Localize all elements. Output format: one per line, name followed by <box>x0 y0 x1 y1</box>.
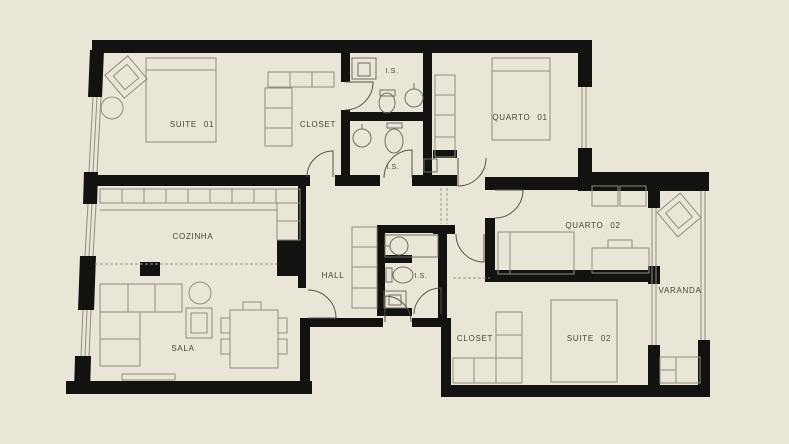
door-is-top-icon <box>345 82 373 110</box>
toilet-is-mid-icon <box>385 123 403 153</box>
room-label-suite-02: SUITE 02 <box>567 334 611 343</box>
dining-table-sala <box>221 302 287 368</box>
room-label-quarto-01: QUARTO 01 <box>492 113 547 122</box>
laundry-tub-icon <box>352 58 376 79</box>
toilet-is-hall-icon <box>386 267 413 283</box>
wardrobe-quarto-01 <box>435 75 455 157</box>
room-label-is-hall: I.S. <box>414 273 427 280</box>
hall-closet-shelves <box>352 227 377 308</box>
closet-top-shelves <box>265 72 334 146</box>
room-label-closet-top: CLOSET <box>300 120 336 129</box>
room-label-closet-bottom: CLOSET <box>457 334 493 343</box>
room-label-suite-01: SUITE 01 <box>170 120 214 129</box>
window-quarto01-icon <box>582 87 586 148</box>
armchair-suite-01-icon <box>105 56 147 98</box>
door-suites-wing-icon <box>456 234 484 262</box>
toilet-is-top-icon <box>379 90 395 113</box>
balcony-chair-icon <box>657 193 701 237</box>
room-label-is-top: I.S. <box>385 68 398 75</box>
room-label-quarto-02: QUARTO 02 <box>565 221 620 230</box>
balcony-cabinet-icon <box>660 357 700 383</box>
bed-suite-01 <box>146 58 216 142</box>
room-label-cozinha: COZINHA <box>173 232 214 241</box>
window-left-bottom-icon <box>81 310 91 356</box>
sink-is-mid-icon <box>353 124 371 147</box>
floor-plan-stage: SUITE 01CLOSETI.S.I.S.QUARTO 01COZINHAQU… <box>0 0 789 444</box>
varanda-railing-icon <box>701 191 705 340</box>
armchair-sala-icon <box>186 308 212 338</box>
room-label-is-mid: I.S. <box>386 164 399 171</box>
door-closet-top-icon <box>307 151 333 177</box>
shower-is-hall-icon <box>384 291 406 308</box>
room-label-sala: SALA <box>171 344 194 353</box>
room-label-varanda: VARANDA <box>659 286 702 295</box>
closet-bottom-shelves <box>453 312 522 383</box>
floor-plan-svg: SUITE 01CLOSETI.S.I.S.QUARTO 01COZINHAQU… <box>0 0 789 444</box>
window-left-top-icon <box>89 97 101 172</box>
door-is-hall-icon <box>414 288 441 314</box>
door-quarto02-icon <box>495 190 523 218</box>
sideboard-sala-icon <box>122 374 175 380</box>
side-table-sala-icon <box>189 282 211 304</box>
room-label-hall: HALL <box>322 271 345 280</box>
window-left-mid-icon <box>85 204 96 256</box>
plant-suite-01-icon <box>101 97 123 119</box>
sofa-sala <box>100 284 182 366</box>
bed-quarto-02 <box>498 232 574 274</box>
sink-is-hall-icon <box>384 235 438 257</box>
sink-is-top-icon <box>405 83 423 107</box>
bed-quarto-01 <box>492 58 550 140</box>
door-quarto01-icon <box>458 158 486 186</box>
door-sala-icon <box>308 290 336 318</box>
desk-quarto-02 <box>592 240 649 273</box>
